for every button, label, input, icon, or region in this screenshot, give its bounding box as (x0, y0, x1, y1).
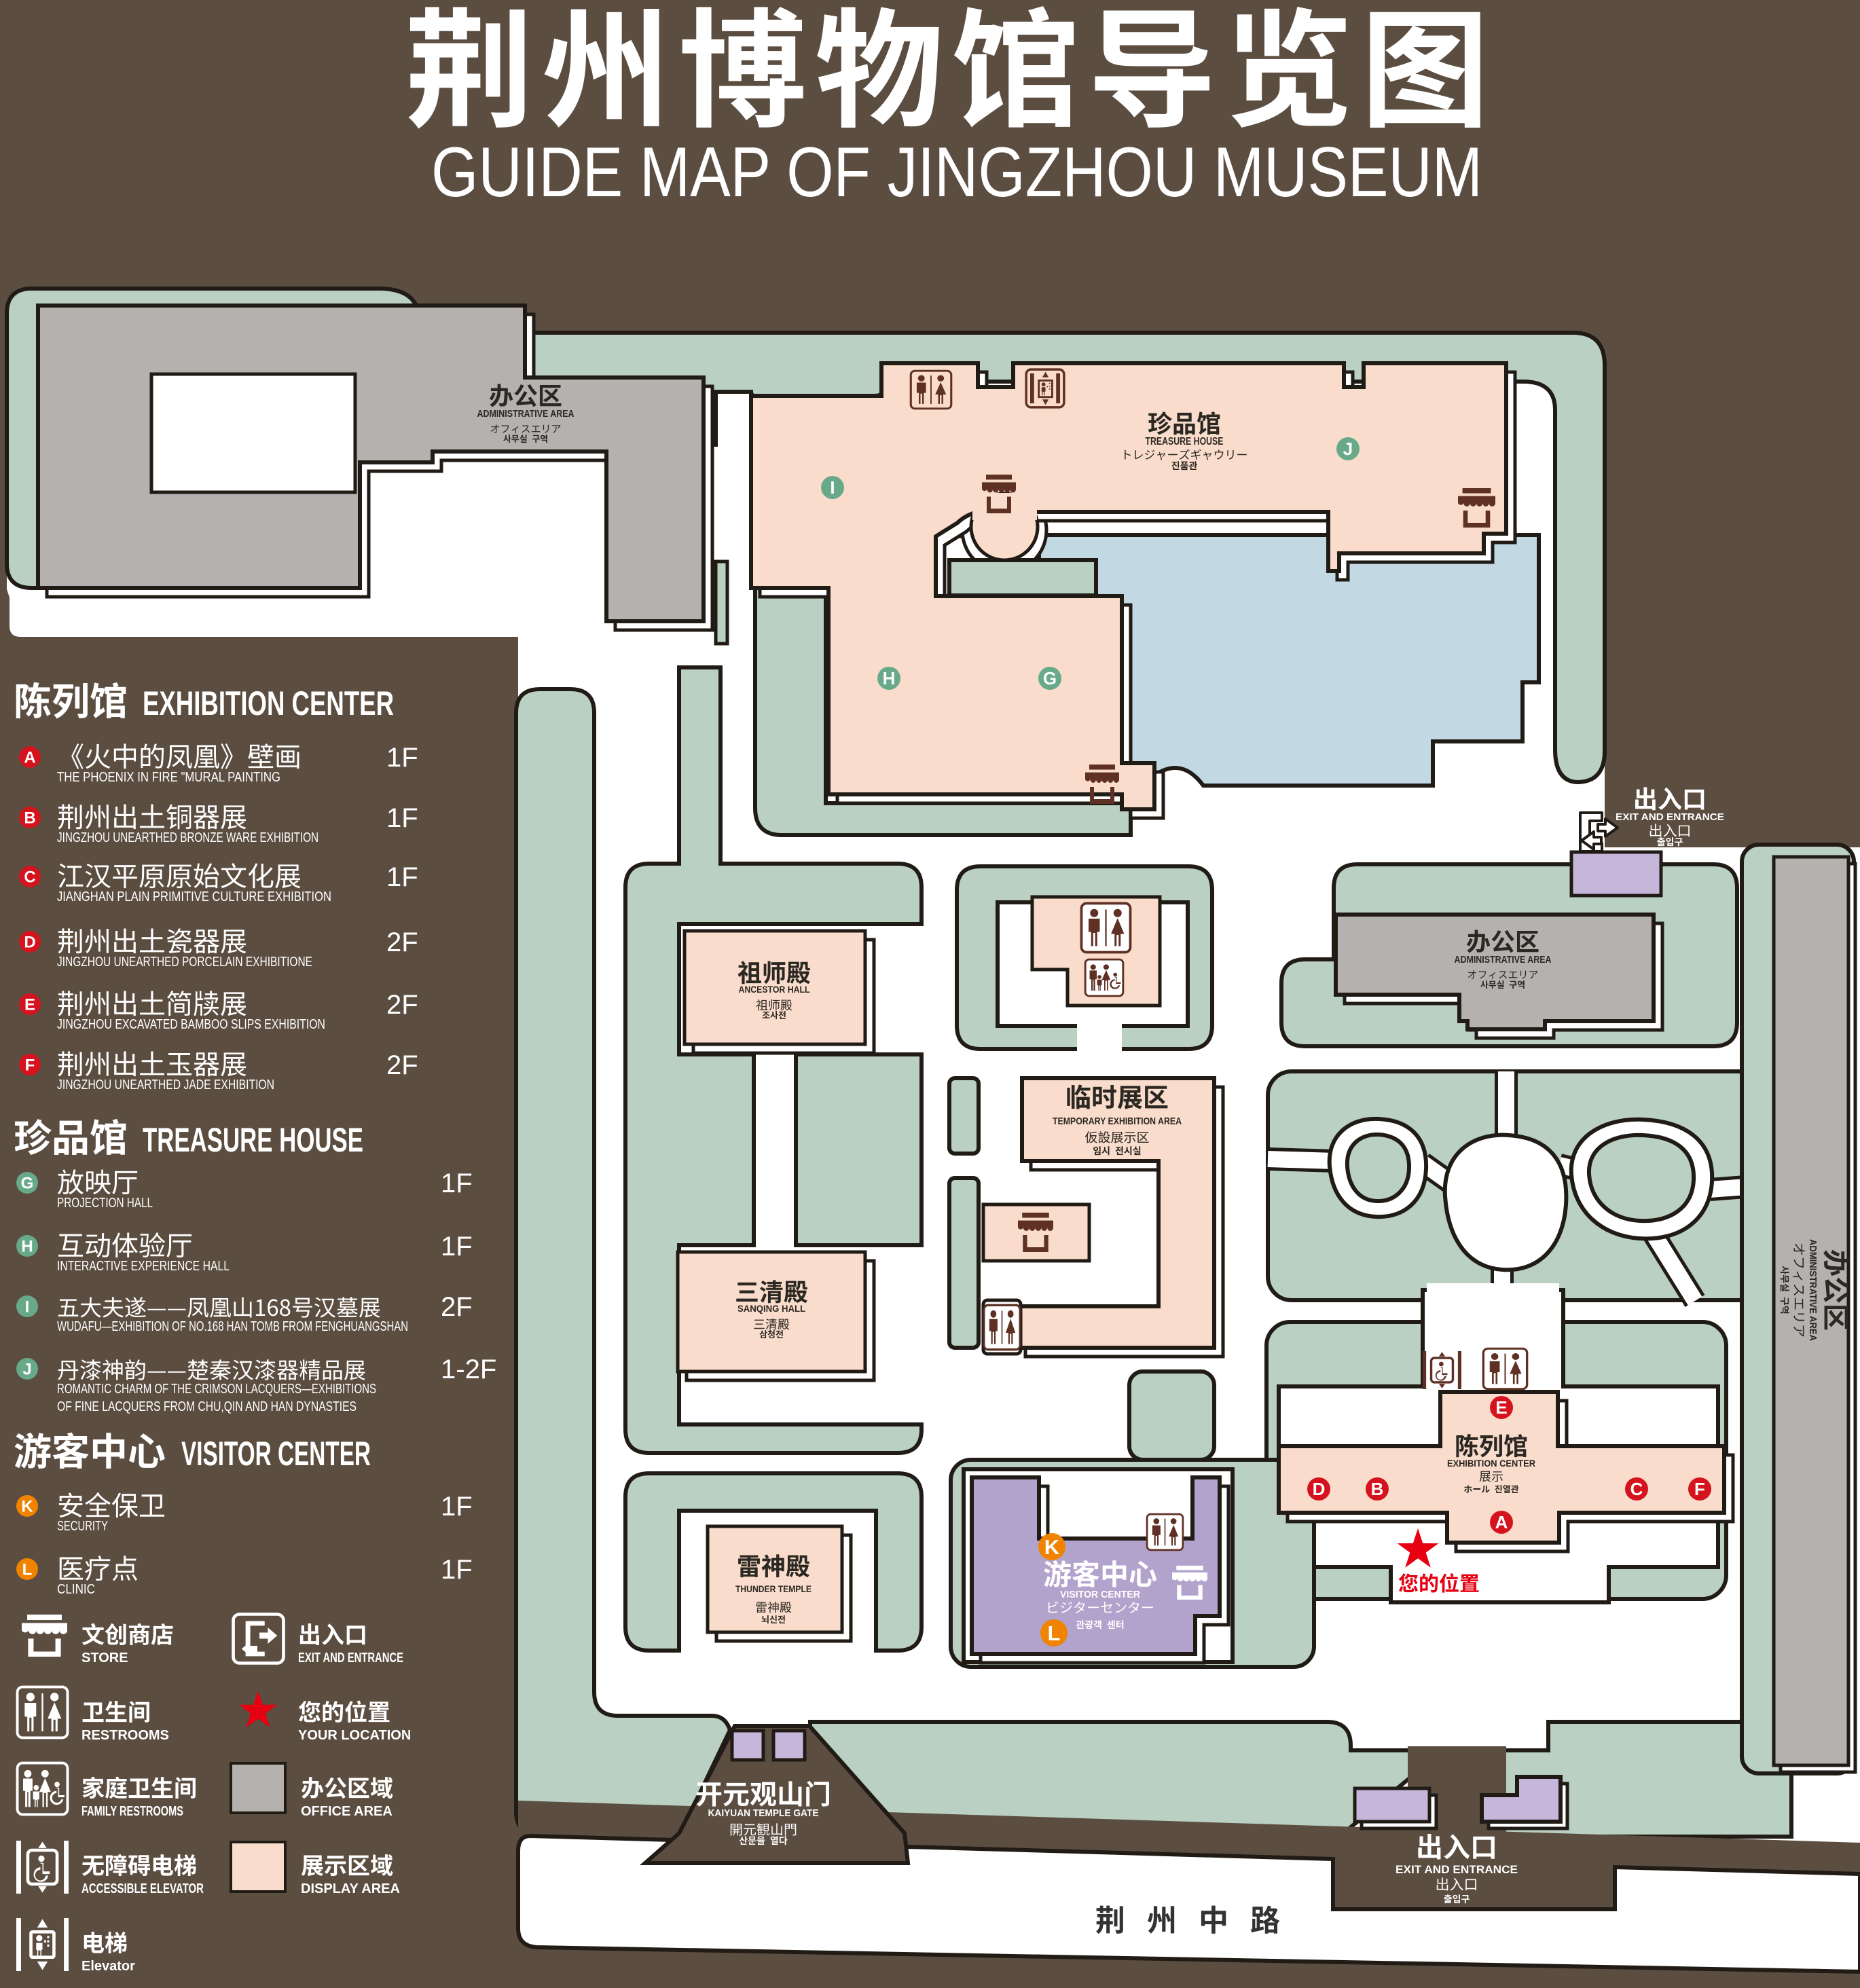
svg-text:H: H (21, 1238, 33, 1256)
svg-text:I: I (25, 1298, 30, 1317)
svg-text:VISITOR CENTER: VISITOR CENTER (181, 1435, 371, 1473)
svg-text:ACCESSIBLE ELEVATOR: ACCESSIBLE ELEVATOR (81, 1881, 204, 1896)
svg-text:YOUR LOCATION: YOUR LOCATION (298, 1728, 411, 1743)
svg-text:2F: 2F (441, 1292, 473, 1322)
svg-text:J: J (1343, 439, 1353, 459)
svg-text:A: A (24, 749, 35, 767)
svg-text:TREASURE HOUSE: TREASURE HOUSE (1146, 436, 1224, 447)
svg-text:EXIT AND ENTRANCE: EXIT AND ENTRANCE (1616, 811, 1724, 823)
svg-text:OFFICE AREA: OFFICE AREA (301, 1804, 393, 1819)
svg-text:A: A (1495, 1512, 1508, 1532)
svg-text:JINGZHOU UNEARTHED JADE EXHIBI: JINGZHOU UNEARTHED JADE EXHIBITION (57, 1078, 274, 1092)
svg-text:J: J (22, 1361, 31, 1379)
svg-text:OF FINE LACQUERS FROM CHU,QIN: OF FINE LACQUERS FROM CHU,QIN AND HAN DY… (57, 1399, 357, 1414)
svg-text:ANCESTOR HALL: ANCESTOR HALL (739, 984, 810, 995)
svg-text:E: E (1495, 1397, 1507, 1418)
svg-text:1F: 1F (386, 862, 418, 892)
svg-text:WUDAFU—EXHIBITION OF NO.168 HA: WUDAFU—EXHIBITION OF NO.168 HAN TOMB FRO… (57, 1319, 408, 1334)
svg-text:CLINIC: CLINIC (57, 1582, 95, 1597)
svg-text:L: L (1048, 1621, 1061, 1645)
svg-text:1-2F: 1-2F (441, 1355, 496, 1384)
svg-text:2F: 2F (386, 990, 418, 1020)
svg-text:1F: 1F (386, 743, 418, 773)
svg-text:EXHIBITION CENTER: EXHIBITION CENTER (143, 684, 394, 722)
svg-text:PROJECTION HALL: PROJECTION HALL (57, 1196, 153, 1211)
svg-text:THE PHOENIX IN FIRE "MURAL PAI: THE PHOENIX IN FIRE "MURAL PAINTING (57, 770, 280, 785)
svg-text:TREASURE HOUSE: TREASURE HOUSE (143, 1121, 363, 1159)
svg-text:ADMINISTRATIVE AREA: ADMINISTRATIVE AREA (1455, 954, 1552, 965)
svg-text:JINGZHOU UNEARTHED PORCELAIN E: JINGZHOU UNEARTHED PORCELAIN EXHIBITIONE (57, 955, 312, 970)
svg-text:1F: 1F (441, 1168, 473, 1198)
svg-text:VISITOR CENTER: VISITOR CENTER (1060, 1589, 1140, 1600)
svg-text:1F: 1F (441, 1492, 473, 1522)
svg-text:I: I (830, 477, 835, 498)
svg-text:D: D (24, 934, 35, 952)
svg-text:1F: 1F (441, 1232, 473, 1262)
svg-text:RESTROOMS: RESTROOMS (81, 1728, 169, 1743)
svg-text:INTERACTIVE EXPERIENCE HALL: INTERACTIVE EXPERIENCE HALL (57, 1259, 230, 1274)
svg-text:G: G (1043, 668, 1057, 688)
svg-text:JINGZHOU EXCAVATED BAMBOO SLIP: JINGZHOU EXCAVATED BAMBOO SLIPS EXHIBITI… (57, 1017, 325, 1032)
svg-text:K: K (1044, 1535, 1060, 1559)
svg-text:D: D (1313, 1479, 1326, 1499)
svg-text:EXIT AND ENTRANCE: EXIT AND ENTRANCE (1396, 1863, 1518, 1876)
svg-text:FAMILY RESTROOMS: FAMILY RESTROOMS (81, 1804, 183, 1819)
svg-text:H: H (883, 668, 896, 688)
svg-text:1F: 1F (441, 1555, 473, 1585)
svg-text:GUIDE MAP OF JINGZHOU MUSEUM: GUIDE MAP OF JINGZHOU MUSEUM (431, 133, 1482, 212)
svg-text:SANQING HALL: SANQING HALL (737, 1303, 805, 1314)
svg-text:F: F (25, 1056, 35, 1075)
svg-text:JIANGHAN PLAIN PRIMITIVE CULTU: JIANGHAN PLAIN PRIMITIVE CULTURE EXHIBIT… (57, 889, 331, 904)
svg-text:TEMPORARY EXHIBITION AREA: TEMPORARY EXHIBITION AREA (1053, 1116, 1182, 1127)
svg-text:C: C (1630, 1479, 1643, 1499)
svg-text:KAIYUAN TEMPLE GATE: KAIYUAN TEMPLE GATE (708, 1807, 819, 1819)
svg-text:1F: 1F (386, 803, 418, 833)
svg-text:K: K (21, 1498, 33, 1516)
svg-text:L: L (22, 1561, 33, 1579)
svg-text:G: G (21, 1175, 34, 1193)
svg-text:EXHIBITION CENTER: EXHIBITION CENTER (1447, 1458, 1535, 1469)
svg-text:ADMINISTRATIVE AREA: ADMINISTRATIVE AREA (1807, 1239, 1819, 1341)
svg-text:B: B (1371, 1479, 1384, 1499)
svg-text:2F: 2F (386, 1050, 418, 1080)
svg-text:F: F (1694, 1479, 1705, 1499)
svg-text:C: C (24, 868, 35, 887)
svg-text:ADMINISTRATIVE AREA: ADMINISTRATIVE AREA (477, 408, 575, 420)
svg-text:Elevator: Elevator (81, 1959, 135, 1974)
svg-text:EXIT AND ENTRANCE: EXIT AND ENTRANCE (298, 1651, 403, 1665)
svg-text:DISPLAY AREA: DISPLAY AREA (301, 1881, 400, 1896)
svg-text:B: B (24, 809, 35, 828)
svg-text:SECURITY: SECURITY (57, 1519, 108, 1534)
svg-text:THUNDER TEMPLE: THUNDER TEMPLE (735, 1583, 812, 1594)
svg-text:ROMANTIC CHARM OF THE CRIMSON: ROMANTIC CHARM OF THE CRIMSON LACQUERS—E… (57, 1382, 376, 1397)
svg-text:STORE: STORE (81, 1651, 128, 1665)
svg-text:2F: 2F (386, 927, 418, 957)
svg-text:E: E (24, 996, 35, 1014)
svg-text:JINGZHOU UNEARTHED BRONZE WARE: JINGZHOU UNEARTHED BRONZE WARE EXHIBITIO… (57, 830, 318, 845)
